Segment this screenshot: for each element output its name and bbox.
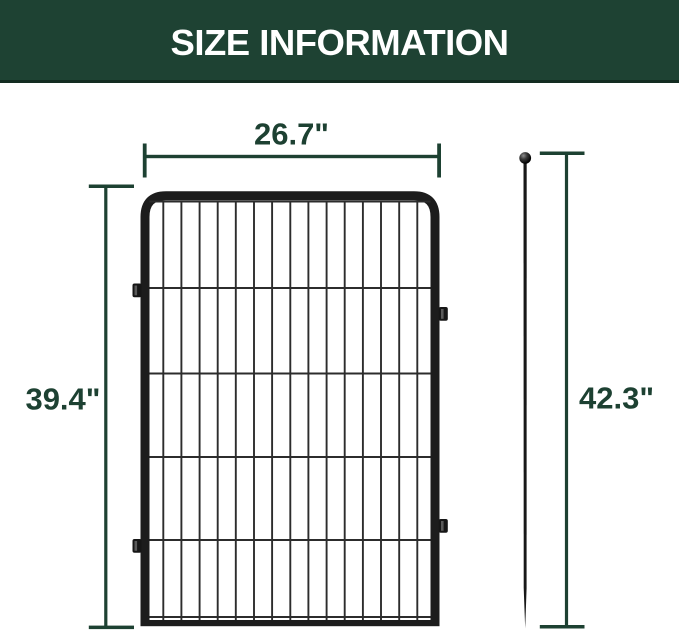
svg-text:39.4": 39.4" [25,382,100,417]
svg-text:26.7": 26.7" [254,117,329,152]
svg-text:42.3": 42.3" [579,381,654,416]
